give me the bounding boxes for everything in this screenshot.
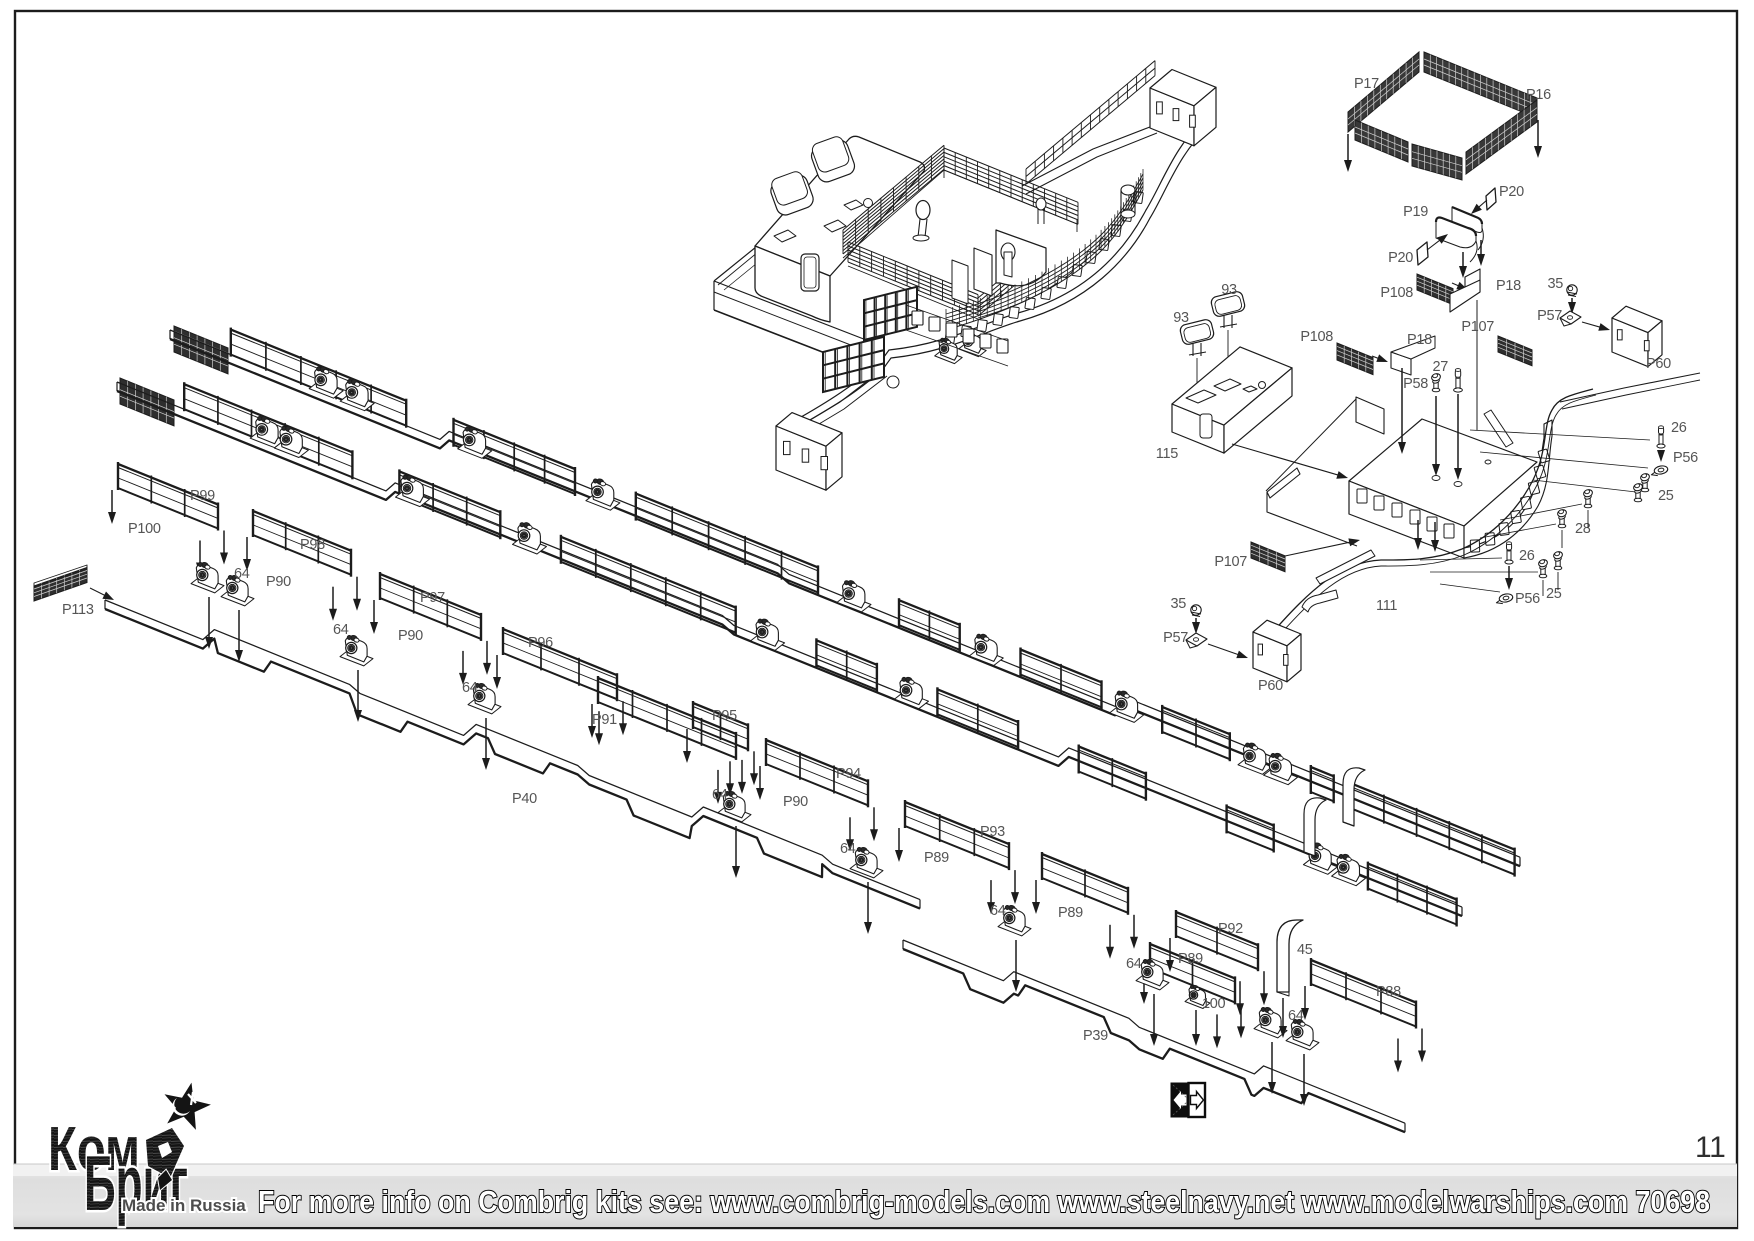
svg-text:P93: P93 [980,824,1005,840]
svg-text:64: 64 [234,566,250,582]
svg-text:P40: P40 [512,791,537,807]
svg-text:P56: P56 [1515,591,1540,607]
svg-text:P96: P96 [528,635,553,651]
svg-text:26: 26 [1671,420,1687,436]
svg-text:P90: P90 [783,794,808,810]
svg-text:P39: P39 [1083,1028,1108,1044]
svg-text:P90: P90 [266,574,291,590]
svg-text:P58: P58 [1403,376,1428,392]
svg-text:P18: P18 [1496,278,1521,294]
svg-text:P20: P20 [1388,250,1413,266]
svg-text:P89: P89 [924,850,949,866]
svg-text:45: 45 [1297,942,1313,958]
svg-text:P89: P89 [1058,905,1083,921]
svg-text:P17: P17 [1354,76,1379,92]
svg-text:P94: P94 [836,766,861,782]
svg-text:25: 25 [1658,488,1674,504]
svg-text:27: 27 [1432,359,1448,375]
svg-text:P89: P89 [1178,951,1203,967]
svg-text:64: 64 [840,841,856,857]
svg-text:Made in Russia: Made in Russia [122,1196,246,1215]
svg-text:P107: P107 [1461,319,1494,335]
svg-text:P18: P18 [1407,332,1432,348]
svg-text:P90: P90 [398,628,423,644]
svg-text:P57: P57 [1537,308,1562,324]
svg-text:P16: P16 [1526,87,1551,103]
svg-text:64: 64 [990,903,1006,919]
svg-text:P95: P95 [712,708,737,724]
svg-text:35: 35 [1547,276,1563,292]
svg-text:P88: P88 [1376,984,1401,1000]
svg-text:P60: P60 [1258,678,1283,694]
svg-text:P98: P98 [300,537,325,553]
svg-text:115: 115 [1156,446,1178,462]
svg-text:For more info on Combrig kits: For more info on Combrig kits see: www.c… [258,1184,1710,1219]
svg-text:P92: P92 [1218,921,1243,937]
svg-text:100: 100 [1202,996,1226,1012]
svg-text:P99: P99 [190,488,215,504]
svg-text:P97: P97 [420,590,445,606]
svg-text:P100: P100 [128,521,161,537]
svg-text:64: 64 [462,680,478,696]
svg-text:64: 64 [1288,1008,1304,1024]
svg-text:64: 64 [712,787,728,803]
svg-text:P60: P60 [1646,356,1671,372]
svg-text:26: 26 [1519,548,1535,564]
svg-text:35: 35 [1170,596,1186,612]
svg-text:93: 93 [1173,310,1189,326]
svg-text:25: 25 [1546,586,1562,602]
svg-text:P56: P56 [1673,450,1698,466]
svg-text:P108: P108 [1300,329,1333,345]
svg-text:P108: P108 [1380,285,1413,301]
svg-text:P107: P107 [1214,554,1247,570]
svg-text:11: 11 [1695,1131,1726,1164]
svg-text:P113: P113 [62,602,94,618]
svg-text:93: 93 [1221,282,1237,298]
svg-text:P20: P20 [1499,184,1524,200]
svg-text:P19: P19 [1403,204,1428,220]
svg-text:111: 111 [1376,598,1397,614]
svg-text:P57: P57 [1163,630,1188,646]
svg-text:64: 64 [333,622,349,638]
svg-text:P91: P91 [592,712,617,728]
svg-text:64: 64 [1126,956,1142,972]
